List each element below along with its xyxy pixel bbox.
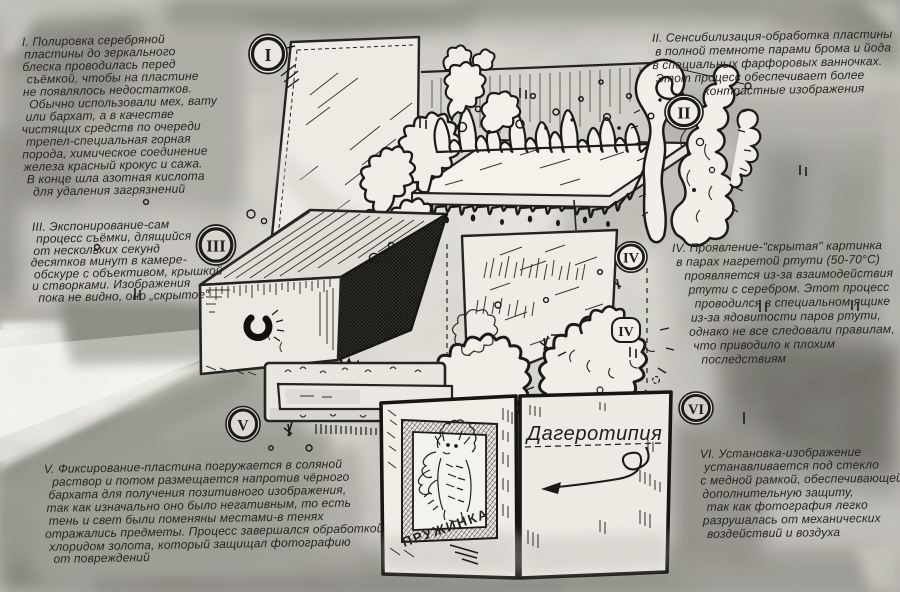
svg-text:I: I (264, 45, 271, 65)
svg-text:IV: IV (618, 325, 634, 340)
svg-text:VI: VI (688, 402, 704, 418)
svg-text:что приводило к плохим: что приводило к плохим (693, 337, 835, 353)
svg-text:контрастные изображения: контрастные изображения (704, 81, 865, 98)
svg-text:IV: IV (623, 251, 640, 267)
svg-text:II: II (677, 104, 691, 123)
svg-text:последствиям: последствиям (701, 351, 786, 366)
svg-text:III: III (206, 237, 225, 256)
svg-text:V: V (237, 418, 249, 435)
svg-text:воздействий и воздуха: воздействий и воздуха (707, 525, 840, 541)
svg-text:от повреждений: от повреждений (53, 550, 150, 566)
svg-text:Дагеротипия: Дагеротипия (525, 423, 662, 445)
svg-text:однако не все следовали правил: однако не все следовали правилам, (689, 322, 895, 339)
